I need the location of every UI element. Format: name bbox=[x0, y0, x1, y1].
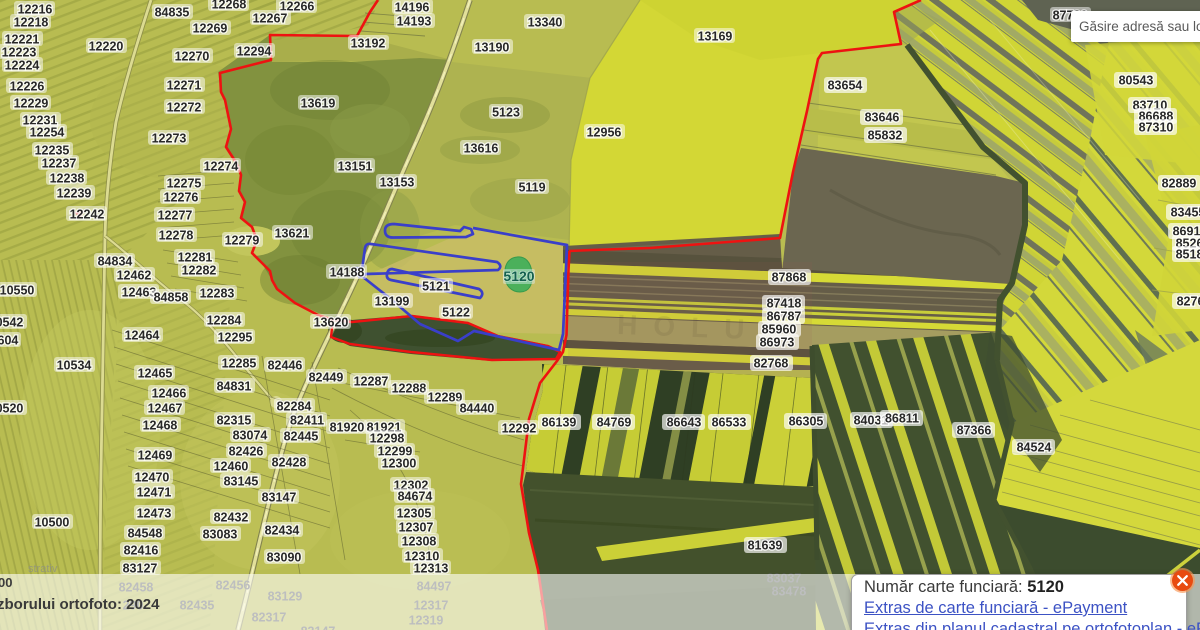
svg-text:10604: 10604 bbox=[0, 333, 18, 347]
svg-text:84831: 84831 bbox=[217, 379, 252, 393]
svg-text:5119: 5119 bbox=[518, 180, 545, 194]
svg-text:5120: 5120 bbox=[503, 268, 534, 284]
svg-text:12468: 12468 bbox=[143, 418, 178, 432]
svg-text:10520: 10520 bbox=[0, 401, 23, 415]
svg-text:12295: 12295 bbox=[218, 330, 253, 344]
svg-text:82434: 82434 bbox=[265, 523, 300, 537]
svg-text:5123: 5123 bbox=[492, 105, 520, 119]
svg-text:82432: 82432 bbox=[214, 510, 249, 524]
svg-text:13192: 13192 bbox=[351, 36, 386, 50]
svg-text:12285: 12285 bbox=[222, 356, 257, 370]
svg-text:12220: 12220 bbox=[89, 39, 124, 53]
svg-text:87310: 87310 bbox=[1139, 120, 1174, 134]
svg-text:86811: 86811 bbox=[885, 411, 919, 425]
svg-text:13616: 13616 bbox=[464, 141, 499, 155]
svg-text:81920: 81920 bbox=[330, 420, 365, 434]
svg-text:12473: 12473 bbox=[137, 506, 172, 520]
svg-text:85832: 85832 bbox=[868, 128, 903, 142]
svg-text:12239: 12239 bbox=[57, 186, 92, 200]
svg-text:12229: 12229 bbox=[14, 96, 49, 110]
svg-text:12283: 12283 bbox=[200, 286, 235, 300]
svg-text:83145: 83145 bbox=[224, 474, 259, 488]
svg-text:83083: 83083 bbox=[203, 527, 238, 541]
svg-text:82889: 82889 bbox=[1162, 176, 1197, 190]
svg-text:12268: 12268 bbox=[212, 0, 247, 11]
svg-text:13199: 13199 bbox=[375, 294, 410, 308]
svg-text:82768: 82768 bbox=[754, 356, 789, 370]
svg-text:12307: 12307 bbox=[399, 520, 434, 534]
svg-text:82428: 82428 bbox=[272, 455, 307, 469]
svg-text:85183: 85183 bbox=[1176, 247, 1200, 261]
svg-text:12218: 12218 bbox=[14, 15, 49, 29]
svg-text:82449: 82449 bbox=[309, 370, 344, 384]
svg-text:82426: 82426 bbox=[229, 444, 264, 458]
svg-text:12275: 12275 bbox=[167, 176, 202, 190]
svg-text:86139: 86139 bbox=[542, 415, 577, 429]
svg-text:84858: 84858 bbox=[154, 290, 189, 304]
svg-text:12267: 12267 bbox=[253, 11, 288, 25]
svg-text:12274: 12274 bbox=[204, 159, 239, 173]
svg-text:12269: 12269 bbox=[193, 21, 228, 35]
svg-text:82416: 82416 bbox=[124, 543, 159, 557]
svg-text:84834: 84834 bbox=[98, 254, 133, 268]
svg-text:13153: 13153 bbox=[380, 175, 415, 189]
svg-text:12238: 12238 bbox=[50, 171, 85, 185]
svg-text:12284: 12284 bbox=[207, 313, 242, 327]
svg-text:13169: 13169 bbox=[698, 29, 733, 43]
svg-text:12272: 12272 bbox=[167, 100, 202, 114]
svg-text:12237: 12237 bbox=[42, 156, 77, 170]
svg-text:12471: 12471 bbox=[137, 485, 172, 499]
svg-text:10542: 10542 bbox=[0, 315, 23, 329]
svg-text:83654: 83654 bbox=[828, 78, 863, 92]
svg-text:12460: 12460 bbox=[214, 459, 249, 473]
svg-text:81639: 81639 bbox=[748, 538, 783, 552]
svg-text:84440: 84440 bbox=[460, 401, 495, 415]
svg-text:82284: 82284 bbox=[277, 399, 312, 413]
svg-text:12469: 12469 bbox=[138, 448, 173, 462]
svg-text:13621: 13621 bbox=[275, 226, 310, 240]
svg-text:12288: 12288 bbox=[392, 381, 427, 395]
svg-text:84524: 84524 bbox=[1017, 440, 1052, 454]
svg-text:12467: 12467 bbox=[148, 401, 183, 415]
svg-text:84674: 84674 bbox=[398, 489, 433, 503]
svg-text:84769: 84769 bbox=[597, 415, 632, 429]
svg-text:13190: 13190 bbox=[475, 40, 510, 54]
svg-text:12270: 12270 bbox=[175, 49, 210, 63]
svg-text:12226: 12226 bbox=[10, 79, 45, 93]
svg-text:12254: 12254 bbox=[30, 125, 65, 139]
svg-text:12464: 12464 bbox=[125, 328, 160, 342]
svg-text:82446: 82446 bbox=[268, 358, 303, 372]
svg-text:12292: 12292 bbox=[502, 421, 537, 435]
svg-text:84548: 84548 bbox=[128, 526, 163, 540]
svg-text:83455: 83455 bbox=[1171, 205, 1200, 219]
svg-text:14193: 14193 bbox=[397, 14, 432, 28]
svg-text:12294: 12294 bbox=[237, 44, 272, 58]
svg-text:86533: 86533 bbox=[712, 415, 747, 429]
svg-text:13620: 13620 bbox=[314, 315, 349, 329]
svg-text:12300: 12300 bbox=[382, 456, 417, 470]
svg-text:5121: 5121 bbox=[422, 279, 450, 293]
svg-text:12305: 12305 bbox=[397, 506, 432, 520]
svg-text:14196: 14196 bbox=[395, 0, 430, 14]
svg-text:12470: 12470 bbox=[135, 470, 170, 484]
svg-text:82411: 82411 bbox=[290, 413, 324, 427]
svg-text:83074: 83074 bbox=[233, 428, 268, 442]
svg-text:86305: 86305 bbox=[789, 414, 824, 428]
svg-text:84835: 84835 bbox=[155, 5, 190, 19]
svg-text:87868: 87868 bbox=[772, 270, 807, 284]
svg-text:82315: 82315 bbox=[217, 413, 252, 427]
svg-text:12462: 12462 bbox=[117, 268, 152, 282]
svg-text:83147: 83147 bbox=[262, 490, 297, 504]
svg-text:10534: 10534 bbox=[57, 358, 92, 372]
svg-text:83090: 83090 bbox=[267, 550, 302, 564]
svg-text:12279: 12279 bbox=[225, 233, 260, 247]
svg-text:12273: 12273 bbox=[152, 131, 187, 145]
svg-text:86643: 86643 bbox=[667, 415, 702, 429]
svg-text:12956: 12956 bbox=[587, 125, 622, 139]
svg-text:5122: 5122 bbox=[442, 305, 470, 319]
svg-text:86973: 86973 bbox=[760, 335, 795, 349]
svg-text:12466: 12466 bbox=[152, 386, 187, 400]
svg-text:12465: 12465 bbox=[138, 366, 173, 380]
svg-text:13619: 13619 bbox=[301, 96, 336, 110]
svg-text:12271: 12271 bbox=[167, 78, 202, 92]
svg-text:13340: 13340 bbox=[528, 15, 563, 29]
svg-text:14188: 14188 bbox=[330, 265, 365, 279]
svg-text:83646: 83646 bbox=[865, 110, 900, 124]
svg-text:80543: 80543 bbox=[1119, 73, 1154, 87]
svg-text:12278: 12278 bbox=[159, 228, 194, 242]
svg-text:13151: 13151 bbox=[338, 159, 373, 173]
svg-text:12224: 12224 bbox=[5, 58, 40, 72]
svg-text:12242: 12242 bbox=[70, 207, 105, 221]
svg-text:12308: 12308 bbox=[402, 534, 437, 548]
svg-text:12276: 12276 bbox=[164, 190, 199, 204]
svg-text:87366: 87366 bbox=[957, 423, 992, 437]
svg-text:82445: 82445 bbox=[284, 429, 319, 443]
svg-text:10500: 10500 bbox=[35, 515, 70, 529]
svg-text:10550: 10550 bbox=[0, 283, 34, 297]
svg-text:12287: 12287 bbox=[354, 374, 389, 388]
svg-text:12277: 12277 bbox=[158, 208, 193, 222]
svg-text:12282: 12282 bbox=[182, 263, 217, 277]
svg-text:82760: 82760 bbox=[1177, 294, 1200, 308]
